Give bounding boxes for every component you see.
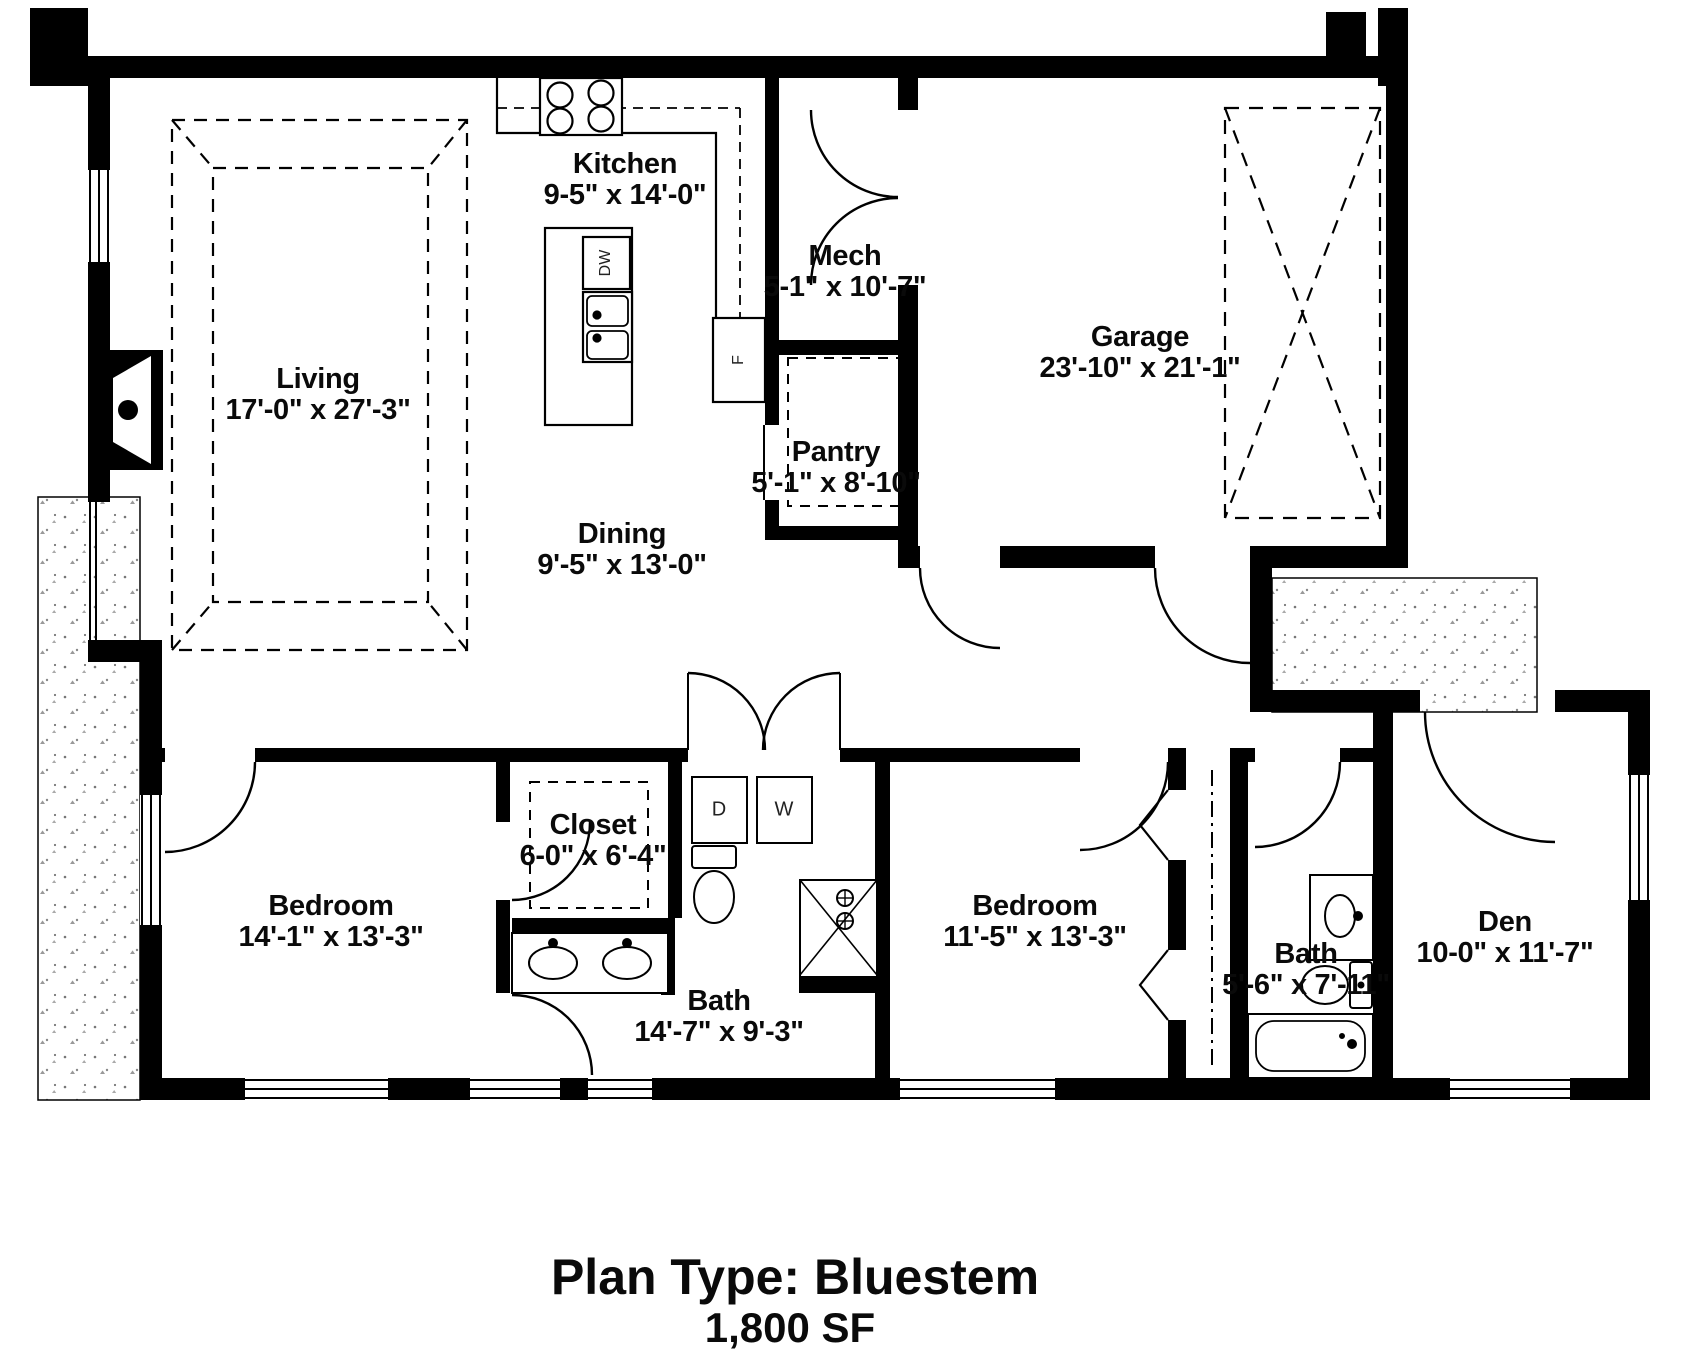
- garage-storage-x: [1225, 108, 1380, 518]
- window-bath1-bottom-1: [470, 1078, 560, 1100]
- dryer-label: D: [712, 799, 726, 822]
- den-dims: 10-0" x 11'-7": [1417, 938, 1594, 969]
- door-garage-entry: [920, 568, 1000, 648]
- room-label-kitchen: Kitchen 9-5" x 14'-0": [544, 149, 707, 211]
- laundry-fixtures: [692, 777, 812, 843]
- den-name: Den: [1417, 907, 1594, 938]
- room-label-dining: Dining 9'-5" x 13'-0": [537, 519, 706, 581]
- closet-dims: 6-0" x 6'-4": [520, 841, 667, 872]
- living-name: Living: [225, 364, 410, 395]
- bedroom2-dims: 11'-5" x 13'-3": [943, 922, 1127, 953]
- floor-plan-drawing: [0, 0, 1700, 1357]
- garage-name: Garage: [1040, 322, 1241, 353]
- bifold-door-lower-icon: [1140, 950, 1168, 1020]
- room-label-closet: Closet 6-0" x 6'-4": [520, 810, 667, 872]
- bedroom2-name: Bedroom: [943, 891, 1127, 922]
- pantry-name: Pantry: [751, 437, 920, 468]
- dining-name: Dining: [537, 519, 706, 550]
- window-bedroom1-bottom: [245, 1078, 388, 1100]
- bath2-name: Bath: [1222, 939, 1390, 970]
- kitchen-name: Kitchen: [544, 149, 707, 180]
- dishwasher-label: DW: [597, 250, 615, 277]
- shower-icon: [800, 880, 877, 992]
- door-bedroom1: [165, 762, 255, 852]
- dining-dims: 9'-5" x 13'-0": [537, 550, 706, 581]
- window-den-bottom: [1450, 1078, 1570, 1100]
- room-label-bedroom2: Bedroom 11'-5" x 13'-3": [943, 891, 1127, 953]
- pantry-dims: 5'-1" x 8'-10": [751, 468, 920, 499]
- window-bedroom2-bottom: [900, 1078, 1055, 1100]
- room-label-bedroom1: Bedroom 14'-1" x 13'-3": [238, 891, 423, 953]
- floor-plan-page: Living 17'-0" x 27'-3" Kitchen 9-5" x 14…: [0, 0, 1700, 1357]
- room-label-garage: Garage 23'-10" x 21'-1": [1040, 322, 1241, 384]
- window-bath1-bottom-2: [588, 1078, 652, 1100]
- garage-dims: 23'-10" x 21'-1": [1040, 353, 1241, 384]
- toilet-icon-bath1: [692, 846, 736, 923]
- bath2-dims: 5'-6" x 7'-11": [1222, 970, 1390, 1001]
- door-back-entry: [1155, 568, 1250, 663]
- door-mech-upper: [811, 110, 898, 197]
- bedroom1-dims: 14'-1" x 13'-3": [238, 922, 423, 953]
- window-bedroom1-left: [140, 795, 162, 925]
- closet-name: Closet: [520, 810, 667, 841]
- room-label-bath2: Bath 5'-6" x 7'-11": [1222, 939, 1390, 1001]
- mech-name: Mech: [764, 241, 927, 272]
- room-label-living: Living 17'-0" x 27'-3": [225, 364, 410, 426]
- plan-area: 1,800 SF: [705, 1304, 875, 1352]
- bath1-dims: 14'-7" x 9'-3": [634, 1017, 803, 1048]
- room-label-den: Den 10-0" x 11'-7": [1417, 907, 1594, 969]
- bifold-door-upper-icon: [1140, 790, 1168, 860]
- door-bath1: [512, 995, 592, 1075]
- fireplace-icon: [103, 350, 163, 470]
- kitchen-sink-icon: [583, 292, 632, 362]
- bathtub-icon: [1248, 1014, 1373, 1078]
- door-den: [1425, 712, 1555, 842]
- kitchen-fixtures: [497, 78, 765, 425]
- mech-dims: 5-1" x 10'-7": [764, 272, 927, 303]
- room-label-pantry: Pantry 5'-1" x 8'-10": [751, 437, 920, 499]
- window-living-left: [88, 170, 110, 262]
- range-icon: [540, 78, 622, 135]
- bath1-name: Bath: [634, 986, 803, 1017]
- room-label-bath1: Bath 14'-7" x 9'-3": [634, 986, 803, 1048]
- kitchen-dims: 9-5" x 14'-0": [544, 180, 707, 211]
- fridge-label: F: [730, 355, 748, 365]
- living-dims: 17'-0" x 27'-3": [225, 395, 410, 426]
- bedroom1-name: Bedroom: [238, 891, 423, 922]
- island-icon: [545, 228, 632, 425]
- door-laundry-right: [763, 673, 840, 750]
- door-bath2: [1255, 762, 1340, 847]
- window-den-right: [1628, 775, 1650, 900]
- plan-title: Plan Type: Bluestem: [551, 1248, 1039, 1306]
- door-laundry-left: [688, 673, 765, 750]
- washer-label: W: [775, 799, 794, 822]
- room-label-mech: Mech 5-1" x 10'-7": [764, 241, 927, 303]
- double-vanity-icon: [512, 933, 668, 993]
